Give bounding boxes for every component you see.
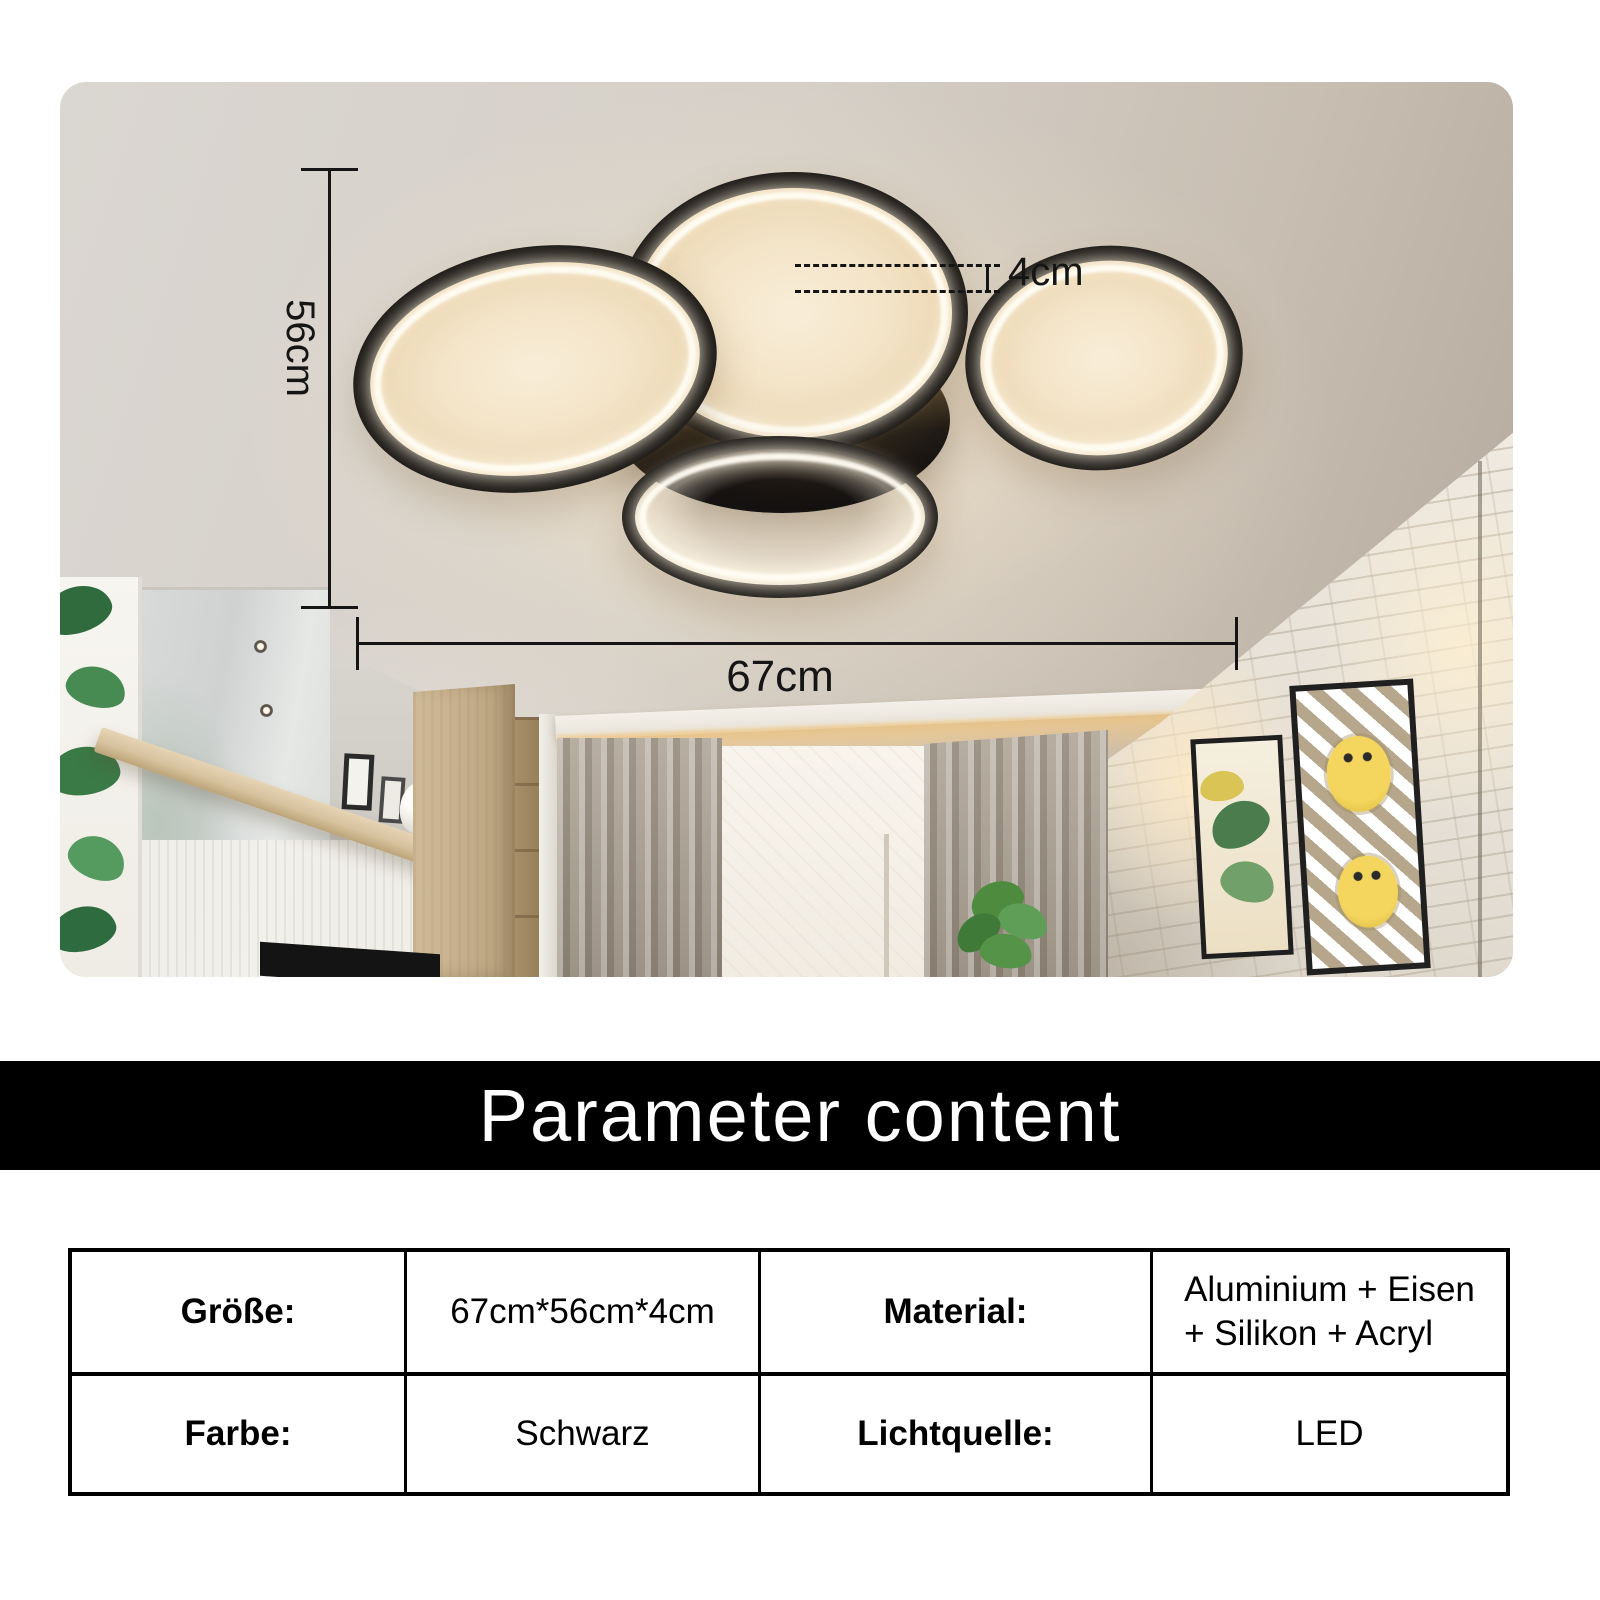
owl-illustration (1325, 734, 1394, 814)
spec-label-farbe: Farbe: (72, 1372, 404, 1492)
owl-illustration (1336, 854, 1400, 930)
spec-label-groesse: Größe: (72, 1252, 404, 1372)
spec-label-lichtquelle: Lichtquelle: (758, 1372, 1150, 1492)
section-banner: Parameter content (0, 1061, 1600, 1170)
window-mullion (884, 834, 889, 977)
led-strip (639, 453, 921, 581)
wall-trim (539, 714, 557, 977)
height-dimension-label: 56cm (278, 288, 322, 408)
depth-dimension-label: 4cm (1008, 250, 1128, 295)
banner-title: Parameter content (479, 1073, 1122, 1158)
height-dimension-cap (301, 168, 358, 171)
plant-leaf (60, 900, 120, 959)
plant-leaf (62, 660, 130, 713)
spec-table: Größe: 67cm*56cm*4cm Material: Aluminium… (68, 1248, 1510, 1496)
spec-value-material-text: Aluminium + Eisen + Silikon + Acryl (1184, 1268, 1475, 1356)
spec-value-farbe: Schwarz (404, 1372, 758, 1492)
potted-plant (940, 882, 1062, 977)
product-photo: 56cm 67cm 4cm (60, 82, 1513, 977)
recessed-light-reflection (254, 640, 267, 653)
shelf-picture-frame (342, 753, 375, 810)
owl-artwork (1289, 678, 1430, 975)
height-dimension-cap (301, 606, 358, 609)
depth-dimension-tick (986, 264, 989, 293)
spec-label-material: Material: (758, 1252, 1150, 1372)
leaf-artwork (1190, 735, 1293, 960)
spec-value-material: Aluminium + Eisen + Silikon + Acryl (1150, 1252, 1506, 1372)
product-page: 56cm 67cm 4cm Parameter content Größe: 6… (0, 0, 1600, 1600)
lamp-ring-bottom (622, 436, 938, 598)
spec-value-lichtquelle: LED (1150, 1372, 1506, 1492)
wall-panel-plant (60, 577, 142, 977)
width-dimension-tick (1235, 617, 1238, 670)
plant-leaf (62, 828, 132, 889)
depth-dimension-dashed-line (795, 264, 1000, 267)
height-dimension-line (328, 170, 331, 608)
art-leaf-shape (1217, 855, 1280, 908)
window (722, 746, 924, 977)
art-leaf-shape (1198, 768, 1246, 805)
plant-leaf (60, 577, 117, 642)
wall-corner (1478, 461, 1482, 977)
curtain-left (557, 738, 722, 977)
cabinet-niche (515, 717, 539, 977)
width-dimension-line (357, 642, 1237, 645)
wooden-cabinet (413, 684, 515, 977)
width-dimension-label: 67cm (700, 652, 860, 702)
recessed-light-reflection (260, 704, 273, 717)
depth-dimension-dashed-line (795, 290, 1000, 293)
width-dimension-tick (356, 617, 359, 670)
spec-value-groesse: 67cm*56cm*4cm (404, 1252, 758, 1372)
